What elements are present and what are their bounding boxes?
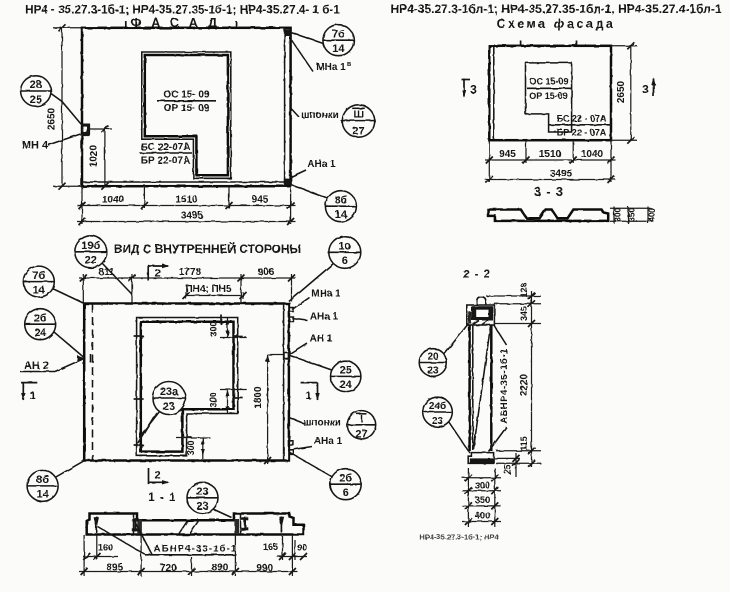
svg-text:23: 23 bbox=[427, 366, 439, 377]
svg-text:АНа 1: АНа 1 bbox=[314, 436, 343, 447]
svg-text:720: 720 bbox=[160, 563, 177, 574]
svg-text:1510: 1510 bbox=[539, 149, 562, 160]
svg-text:1 - 1: 1 - 1 bbox=[148, 492, 176, 504]
svg-text:23: 23 bbox=[163, 401, 175, 413]
svg-text:23: 23 bbox=[432, 416, 444, 427]
svg-text:25: 25 bbox=[340, 365, 352, 377]
svg-text:БС 22-07А: БС 22-07А bbox=[141, 142, 191, 153]
svg-text:300: 300 bbox=[186, 440, 196, 455]
svg-text:300: 300 bbox=[209, 392, 219, 407]
svg-text:300: 300 bbox=[209, 321, 219, 336]
svg-text:3495: 3495 bbox=[550, 169, 573, 180]
svg-text:1510: 1510 bbox=[175, 195, 198, 206]
svg-text:МНа 1: МНа 1 bbox=[311, 289, 341, 300]
svg-text:3 - 3: 3 - 3 bbox=[534, 185, 564, 199]
svg-text:906: 906 bbox=[258, 267, 275, 278]
svg-text:БС 22 - 07А: БС 22 - 07А bbox=[557, 114, 607, 124]
svg-text:8б: 8б bbox=[36, 474, 49, 486]
svg-text:160: 160 bbox=[98, 543, 113, 553]
svg-text:БР 22 - 07А: БР 22 - 07А bbox=[557, 128, 607, 138]
svg-text:МН 4: МН 4 bbox=[22, 140, 49, 152]
svg-text:1о: 1о bbox=[338, 241, 351, 253]
svg-text:1: 1 bbox=[305, 390, 311, 402]
svg-text:19б: 19б bbox=[81, 240, 100, 252]
svg-text:ОР 15- 09: ОР 15- 09 bbox=[164, 103, 210, 114]
svg-text:350: 350 bbox=[627, 207, 637, 221]
svg-text:1020: 1020 bbox=[89, 144, 100, 167]
svg-text:27: 27 bbox=[355, 429, 367, 441]
svg-text:2 - 2: 2 - 2 bbox=[463, 269, 491, 281]
svg-text:20: 20 bbox=[427, 352, 439, 363]
svg-text:3: 3 bbox=[470, 83, 477, 97]
svg-text:АБНР4-33-1б-1: АБНР4-33-1б-1 bbox=[154, 544, 238, 555]
svg-text:в: в bbox=[347, 61, 352, 68]
svg-text:БР 22-07А: БР 22-07А bbox=[141, 156, 190, 167]
svg-text:24: 24 bbox=[340, 379, 353, 391]
svg-text:АН 1: АН 1 bbox=[310, 334, 333, 345]
svg-text:АН 2: АН 2 bbox=[24, 360, 49, 372]
svg-text:25: 25 bbox=[30, 94, 42, 106]
svg-text:1: 1 bbox=[29, 390, 35, 402]
svg-text:ОР 15-09: ОР 15-09 bbox=[529, 91, 568, 101]
svg-text:7б: 7б bbox=[332, 28, 345, 40]
svg-text:Ш: Ш bbox=[353, 110, 363, 121]
svg-text:Схема фасада: Схема фасада bbox=[497, 17, 616, 31]
svg-text:23: 23 bbox=[196, 501, 208, 513]
svg-text:115: 115 bbox=[519, 436, 529, 450]
svg-text:895: 895 bbox=[106, 563, 123, 574]
svg-text:2: 2 bbox=[154, 268, 160, 280]
svg-text:2220: 2220 bbox=[519, 373, 530, 396]
svg-text:шпонки: шпонки bbox=[301, 110, 339, 121]
svg-text:НР4 - 35.27.3-1б-1; НР4-35.27.: НР4 - 35.27.3-1б-1; НР4-35.27.35-1б-1; Н… bbox=[25, 4, 340, 17]
svg-text:ВИД С ВНУТРЕННЕЙ СТОРОНЫ: ВИД С ВНУТРЕННЕЙ СТОРОНЫ bbox=[114, 241, 301, 256]
svg-text:6: 6 bbox=[343, 487, 349, 499]
svg-text:23а: 23а bbox=[160, 386, 179, 398]
svg-text:811: 811 bbox=[98, 267, 115, 278]
svg-text:1800: 1800 bbox=[253, 386, 264, 409]
svg-text:8б: 8б bbox=[334, 194, 347, 206]
svg-text:ОС 15-09: ОС 15-09 bbox=[529, 77, 568, 87]
svg-text:2650: 2650 bbox=[47, 107, 58, 130]
svg-text:шпонки: шпонки bbox=[303, 418, 341, 429]
svg-text:300: 300 bbox=[475, 481, 491, 491]
svg-text:14: 14 bbox=[36, 489, 49, 501]
svg-text:890: 890 bbox=[212, 563, 229, 574]
svg-text:3495: 3495 bbox=[181, 211, 204, 222]
svg-text:25: 25 bbox=[503, 465, 513, 475]
svg-text:2б: 2б bbox=[339, 472, 352, 484]
svg-text:400: 400 bbox=[647, 207, 657, 221]
svg-text:ПН4; ПН5: ПН4; ПН5 bbox=[185, 284, 231, 295]
svg-text:АНа 1: АНа 1 bbox=[307, 159, 336, 170]
svg-text:14: 14 bbox=[335, 209, 348, 221]
svg-text:6: 6 bbox=[342, 255, 348, 267]
svg-text:МНа 1: МНа 1 bbox=[316, 62, 346, 73]
svg-text:24б: 24б bbox=[429, 400, 446, 412]
svg-text:945: 945 bbox=[252, 195, 269, 206]
svg-text:28: 28 bbox=[30, 79, 42, 91]
svg-text:3: 3 bbox=[642, 83, 649, 97]
svg-text:128: 128 bbox=[519, 283, 529, 298]
svg-text:14: 14 bbox=[332, 43, 345, 55]
svg-text:23: 23 bbox=[196, 486, 208, 498]
svg-text:НР4-35.27.3-1бл-1; НР4-35.27.3: НР4-35.27.3-1бл-1; НР4-35.27.35-1бл-1, Н… bbox=[390, 2, 721, 16]
svg-text:14: 14 bbox=[33, 284, 46, 296]
svg-text:990: 990 bbox=[256, 563, 273, 574]
svg-text:1040: 1040 bbox=[581, 149, 604, 160]
svg-text:2: 2 bbox=[154, 470, 160, 482]
svg-text:350: 350 bbox=[475, 495, 491, 505]
svg-text:945: 945 bbox=[499, 149, 516, 160]
svg-text:345: 345 bbox=[519, 306, 529, 321]
svg-text:7б: 7б bbox=[32, 270, 45, 282]
svg-text:АНа 1: АНа 1 bbox=[310, 312, 339, 323]
svg-text:22: 22 bbox=[85, 255, 97, 267]
svg-text:1040: 1040 bbox=[102, 195, 125, 206]
svg-text:400: 400 bbox=[475, 510, 491, 520]
svg-text:300: 300 bbox=[613, 207, 623, 221]
svg-text:2650: 2650 bbox=[616, 80, 627, 103]
svg-text:90: 90 bbox=[297, 543, 307, 553]
svg-text:I: I bbox=[360, 414, 363, 425]
svg-text:24: 24 bbox=[34, 327, 47, 339]
svg-text:ОС 15- 09: ОС 15- 09 bbox=[163, 90, 210, 101]
svg-text:2б: 2б bbox=[34, 312, 47, 324]
svg-text:27: 27 bbox=[352, 126, 364, 138]
svg-text:АБНР4-35-1б-1: АБНР4-35-1б-1 bbox=[498, 348, 509, 424]
svg-text:165: 165 bbox=[263, 542, 278, 552]
svg-text:НР4-35.27.3-1б-1; НР4: НР4-35.27.3-1б-1; НР4 bbox=[419, 533, 499, 542]
svg-text:1778: 1778 bbox=[179, 267, 202, 278]
